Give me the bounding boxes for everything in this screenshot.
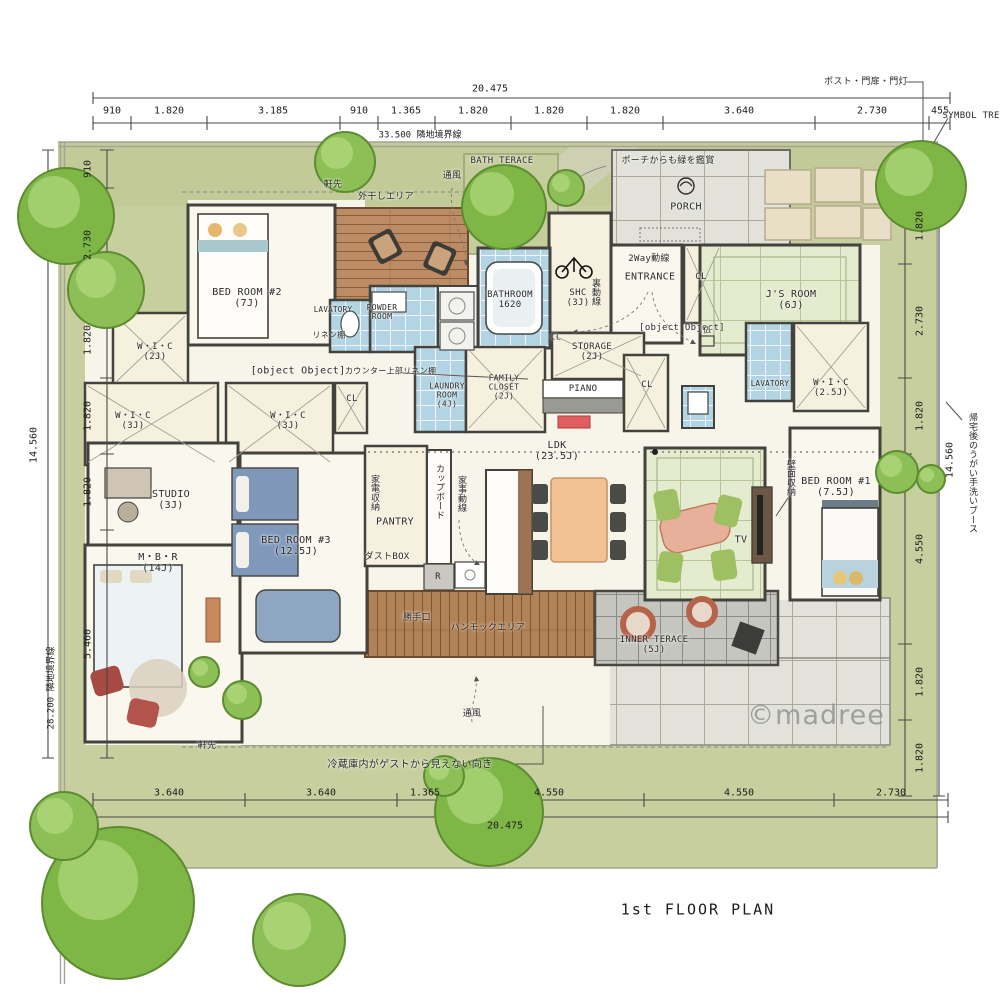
note-outdoor-dry: 外干しエリア xyxy=(358,192,414,202)
note-hammock: ハンモックエリア xyxy=(451,623,525,633)
watermark: ©madree xyxy=(747,701,885,731)
note-fridge-orientation: 冷蔵庫内がゲストから見えない向き xyxy=(328,759,493,770)
note-dustbox: ダストBOX xyxy=(364,552,409,562)
boundary-label-left: 28.200 隣地境界線 xyxy=(44,647,57,730)
room-label-mbr: M・B・R(14J) xyxy=(138,552,178,574)
room-label-wic2: W・I・C(2J) xyxy=(137,342,173,362)
note-cupboard: カップボード xyxy=(434,464,444,520)
piano-label: PIANO xyxy=(569,384,598,394)
tree xyxy=(189,657,219,687)
room-label-studio: STUDIO(3J) xyxy=(152,489,190,511)
dim-left-1: 2.730 xyxy=(83,230,94,260)
dim-right-4: 1.820 xyxy=(915,667,926,697)
dim-left-4: 1.820 xyxy=(83,477,94,507)
note-symbol-tree: SYMBOL TREE xyxy=(943,111,1000,121)
note-wall-storage: 壁面収納 xyxy=(785,459,795,496)
tree xyxy=(876,451,918,493)
room-label-powder: POWDER ROOM xyxy=(356,304,408,322)
room-label-inner-terrace: INNER TERACE(5J) xyxy=(620,635,689,655)
dim-bottom-3: 4.550 xyxy=(534,788,564,799)
room-label-cl-a: CL xyxy=(346,394,357,404)
dim-right-2: 1.820 xyxy=(915,401,926,431)
room-label-wic3-left: W・I・C(3J) xyxy=(115,411,151,431)
room-label-entrance: ENTRANCE xyxy=(625,271,676,282)
room-label-laundry: LAUNDRY ROOM(4J) xyxy=(419,383,475,410)
note-linen-shelf: リネン棚 xyxy=(312,332,345,341)
tree xyxy=(68,252,144,328)
plan-title: 1st FLOOR PLAN xyxy=(621,902,775,919)
dim-bottom-5: 2.730 xyxy=(876,788,906,799)
room-label-bathroom: BATHROOM1620 xyxy=(487,290,533,310)
room-label-pantry: PANTRY xyxy=(376,516,414,527)
dim-top-8: 3.640 xyxy=(724,106,754,117)
dim-right-5: 1.820 xyxy=(915,743,926,773)
tree xyxy=(18,168,114,264)
dim-top-4: 1.365 xyxy=(391,106,421,117)
room-label-storage: STORAGE(2J) xyxy=(572,342,612,362)
tree xyxy=(917,465,945,493)
dim-top-5: 1.820 xyxy=(458,106,488,117)
dim-right-1: 2.730 xyxy=(915,306,926,336)
note-washbooth: 帰宅後のうがい手洗いブース xyxy=(967,413,977,534)
tree xyxy=(30,792,98,860)
dim-left-3: 1.820 xyxy=(83,401,94,431)
room-label-cl-center: CL xyxy=(641,380,652,390)
dim-bottom-total: 20.475 xyxy=(487,821,523,832)
room-label-cl-entrance: CL xyxy=(695,272,706,282)
room-label-jsroom: J'S ROOM(6J) xyxy=(766,289,817,311)
note-bath-terrace: BATH TERACE xyxy=(471,156,534,166)
note-post-gate: ポスト・門扉・門灯 xyxy=(824,77,908,87)
room-label-lavatory-left: LAVATORY xyxy=(314,306,353,314)
dim-bottom-2: 1.365 xyxy=(410,788,440,799)
dim-left-5: 5.460 xyxy=(83,629,94,659)
fridge-mark: R xyxy=(435,572,441,582)
dim-bottom-0: 3.640 xyxy=(154,788,184,799)
dim-right-0: 1.820 xyxy=(915,211,926,241)
room-label-bedroom1: BED ROOM #1(7.5J) xyxy=(801,476,871,498)
note-appliance-storage: 家電収納 xyxy=(369,474,379,511)
dim-top-9: 2.730 xyxy=(857,106,887,117)
tree xyxy=(253,894,345,986)
note-housework-line: 家事動線 xyxy=(456,475,466,512)
dim-bottom-4: 4.550 xyxy=(724,788,754,799)
tree xyxy=(223,681,261,719)
plan-drawing xyxy=(0,0,1000,1000)
room-label-wic25: W・I・C(2.5J) xyxy=(813,378,849,398)
room-label-lavatory-right: LAVATORY xyxy=(751,380,790,388)
dim-bottom-1: 3.640 xyxy=(306,788,336,799)
note-back-flow-line: 裏動線 xyxy=(590,278,600,306)
dim-top-7: 1.820 xyxy=(610,106,640,117)
note-backdoor: 勝手口 xyxy=(403,613,431,623)
note-2way-line: 2Way動線 xyxy=(628,254,669,264)
room-label-hall-left: [object Object] xyxy=(251,365,346,376)
floor-plan-canvas: 20.475 910 1.820 3.185 910 1.365 1.820 1… xyxy=(0,0,1000,1000)
note-eaves-bottom: 軒先 xyxy=(198,741,217,751)
room-label-family-closet: FAMILY CLOSET(2J) xyxy=(473,375,535,402)
dim-top-0: 910 xyxy=(103,106,121,117)
room-label-cl-shc: CL xyxy=(551,334,561,343)
dim-top-6: 1.820 xyxy=(534,106,564,117)
tree xyxy=(548,170,584,206)
butsudan-mark: 仏 xyxy=(703,327,711,336)
dim-left-0: 910 xyxy=(83,160,94,178)
dim-top-2: 3.185 xyxy=(258,106,288,117)
note-vent-top: 通風 xyxy=(443,171,462,181)
tv-label: TV xyxy=(735,534,748,545)
note-counter-linen: カウンター上部リネン棚 xyxy=(345,368,436,377)
dim-top-total: 20.475 xyxy=(472,84,508,95)
room-label-shc: SHC(3J) xyxy=(567,288,590,308)
dim-top-1: 1.820 xyxy=(154,106,184,117)
dim-left-total: 14.560 xyxy=(29,427,40,463)
note-vent-bottom: 通風 xyxy=(463,709,482,719)
dim-right-3: 4.550 xyxy=(915,534,926,564)
room-label-wic3-right: W・I・C(3J) xyxy=(270,411,306,431)
dim-left-2: 1.820 xyxy=(83,325,94,355)
room-label-bedroom2: BED ROOM #2(7J) xyxy=(212,287,282,309)
room-label-ldk: LDK(23.5J) xyxy=(535,440,579,462)
room-label-bedroom3: BED ROOM #3(12.5J) xyxy=(261,535,331,557)
room-label-porch: PORCH xyxy=(670,201,702,212)
tree xyxy=(462,165,546,249)
dim-top-3: 910 xyxy=(350,106,368,117)
boundary-label-top: 33.500 隣地境界線 xyxy=(379,128,462,141)
dim-right-total: 14.560 xyxy=(945,442,956,478)
note-eaves-top: 軒先 xyxy=(324,180,343,190)
room-label-hall-right: [object Object] xyxy=(639,323,725,333)
note-porch-green: ポーチからも緑を鑑賞 xyxy=(621,156,714,166)
